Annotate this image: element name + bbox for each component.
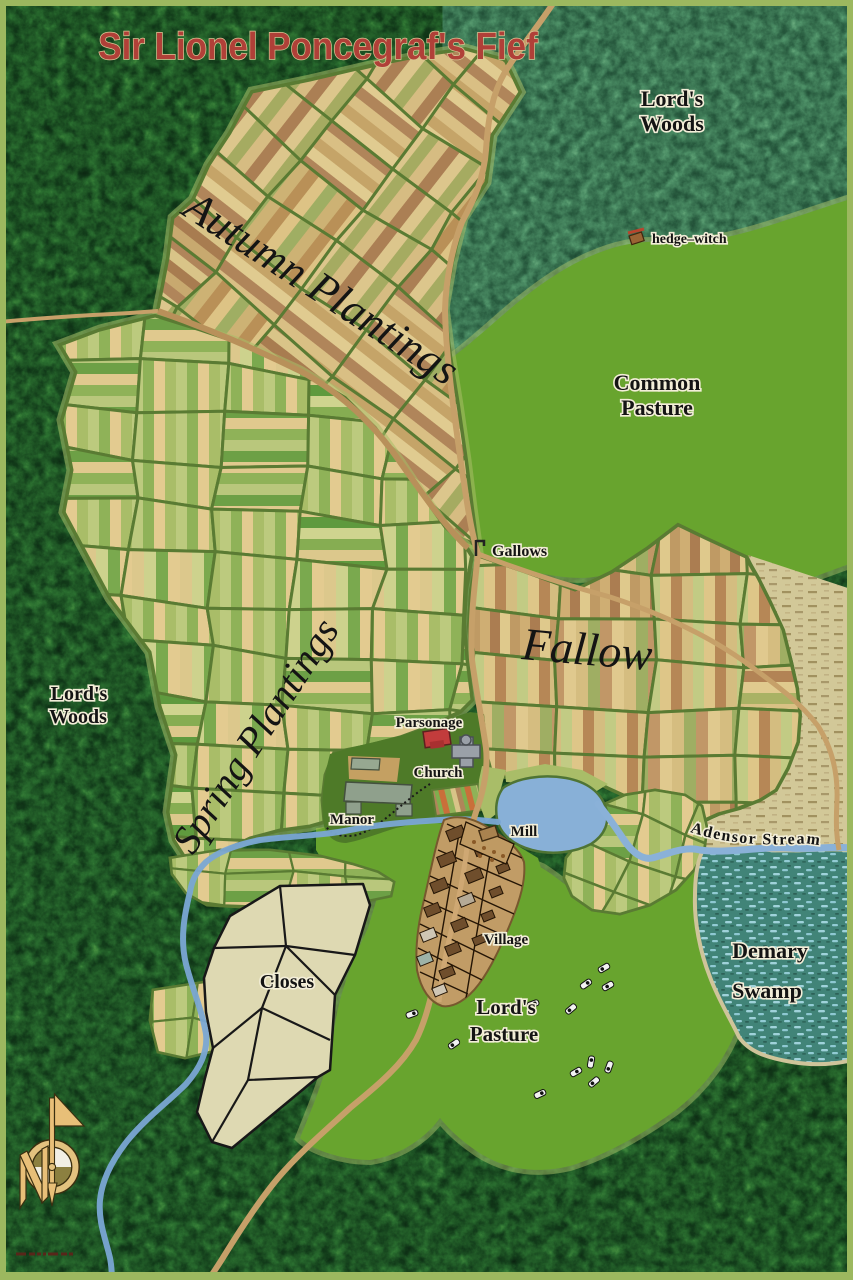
svg-text:Pasture: Pasture — [621, 395, 693, 420]
svg-text:Sir Lionel Poncegraf's Fief: Sir Lionel Poncegraf's Fief — [98, 25, 538, 68]
svg-text:Village: Village — [484, 932, 529, 948]
svg-text:Closes: Closes — [260, 971, 315, 993]
svg-text:Common: Common — [614, 370, 701, 395]
svg-text:Woods: Woods — [640, 111, 704, 136]
svg-text:Parsonage: Parsonage — [396, 715, 463, 731]
svg-text:Church: Church — [414, 765, 464, 781]
svg-text:Lord's: Lord's — [641, 86, 704, 111]
svg-text:Swamp: Swamp — [732, 978, 802, 1003]
svg-text:hedge–witch: hedge–witch — [652, 232, 727, 247]
svg-text:Gallows: Gallows — [492, 543, 547, 560]
svg-text:Lord's: Lord's — [51, 683, 108, 705]
svg-text:Demary: Demary — [732, 938, 808, 963]
svg-text:Mill: Mill — [511, 824, 538, 840]
svg-text:Lord's: Lord's — [476, 995, 536, 1019]
svg-text:Manor: Manor — [330, 812, 375, 828]
svg-text:Pasture: Pasture — [470, 1022, 538, 1046]
svg-text:Woods: Woods — [49, 706, 107, 728]
